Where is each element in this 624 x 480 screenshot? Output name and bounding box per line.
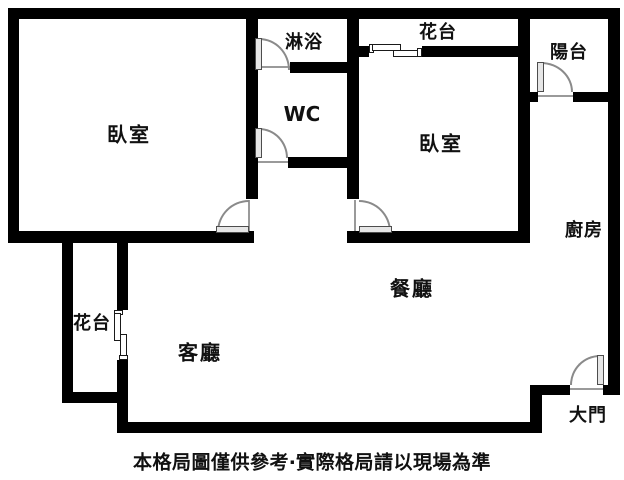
label-balcony: 陽台 xyxy=(550,38,588,64)
label-wc: WC xyxy=(284,102,321,126)
label-dining: 餐廳 xyxy=(390,273,434,302)
door-arc-icon xyxy=(259,128,288,158)
wall-bedroom-right-right xyxy=(518,8,530,243)
wall-bedroom-left-right xyxy=(246,8,258,199)
door-jamb xyxy=(570,388,603,390)
door-arc-icon xyxy=(541,62,573,92)
wall-left xyxy=(8,8,19,243)
label-flower-top: 花台 xyxy=(419,18,457,44)
wall-flower-top-left-stub xyxy=(359,46,369,57)
wall-balcony-left-stub xyxy=(518,92,538,102)
disclaimer-caption: 本格局圖僅供參考‧實際格局請以現場為準 xyxy=(133,448,491,475)
label-main-door: 大門 xyxy=(569,401,607,427)
flower-left-window-icon xyxy=(113,310,129,360)
door-panel-icon xyxy=(537,62,544,92)
label-flower-left: 花台 xyxy=(73,309,111,335)
label-kitchen: 廚房 xyxy=(565,216,603,242)
label-bedroom-left: 臥室 xyxy=(107,119,151,148)
wall-flower-left-outer xyxy=(62,243,73,403)
wall-balcony-right-stub xyxy=(573,92,620,102)
wall-flower-left-inner-upper xyxy=(117,243,128,310)
wall-bedroom-right-left xyxy=(347,8,359,199)
wall-right xyxy=(608,8,620,395)
door-panel-icon xyxy=(597,355,604,385)
bedroom-right-top-window-icon xyxy=(369,43,422,58)
wall-bottom xyxy=(117,422,542,433)
floor-plan: 臥室 淋浴 WC 花台 陽台 臥室 廚房 餐廳 花台 客廳 大門 本格局圖僅供參… xyxy=(0,0,624,480)
wall-flower-left-inner-lower xyxy=(117,360,128,422)
wall-entry-right xyxy=(603,385,620,395)
door-panel-icon xyxy=(255,128,262,158)
label-shower: 淋浴 xyxy=(285,28,323,54)
wall-flower-top-right-stub xyxy=(422,46,518,57)
door-jamb xyxy=(354,200,356,231)
door-panel-icon xyxy=(359,226,392,233)
door-panel-icon xyxy=(255,38,262,70)
label-living: 客廳 xyxy=(178,337,222,366)
door-jamb xyxy=(538,95,573,97)
door-jamb xyxy=(258,161,288,163)
door-arc-icon xyxy=(570,355,600,385)
door-panel-icon xyxy=(216,226,249,233)
wall-entry-left xyxy=(530,385,570,395)
label-bedroom-right: 臥室 xyxy=(419,128,463,157)
